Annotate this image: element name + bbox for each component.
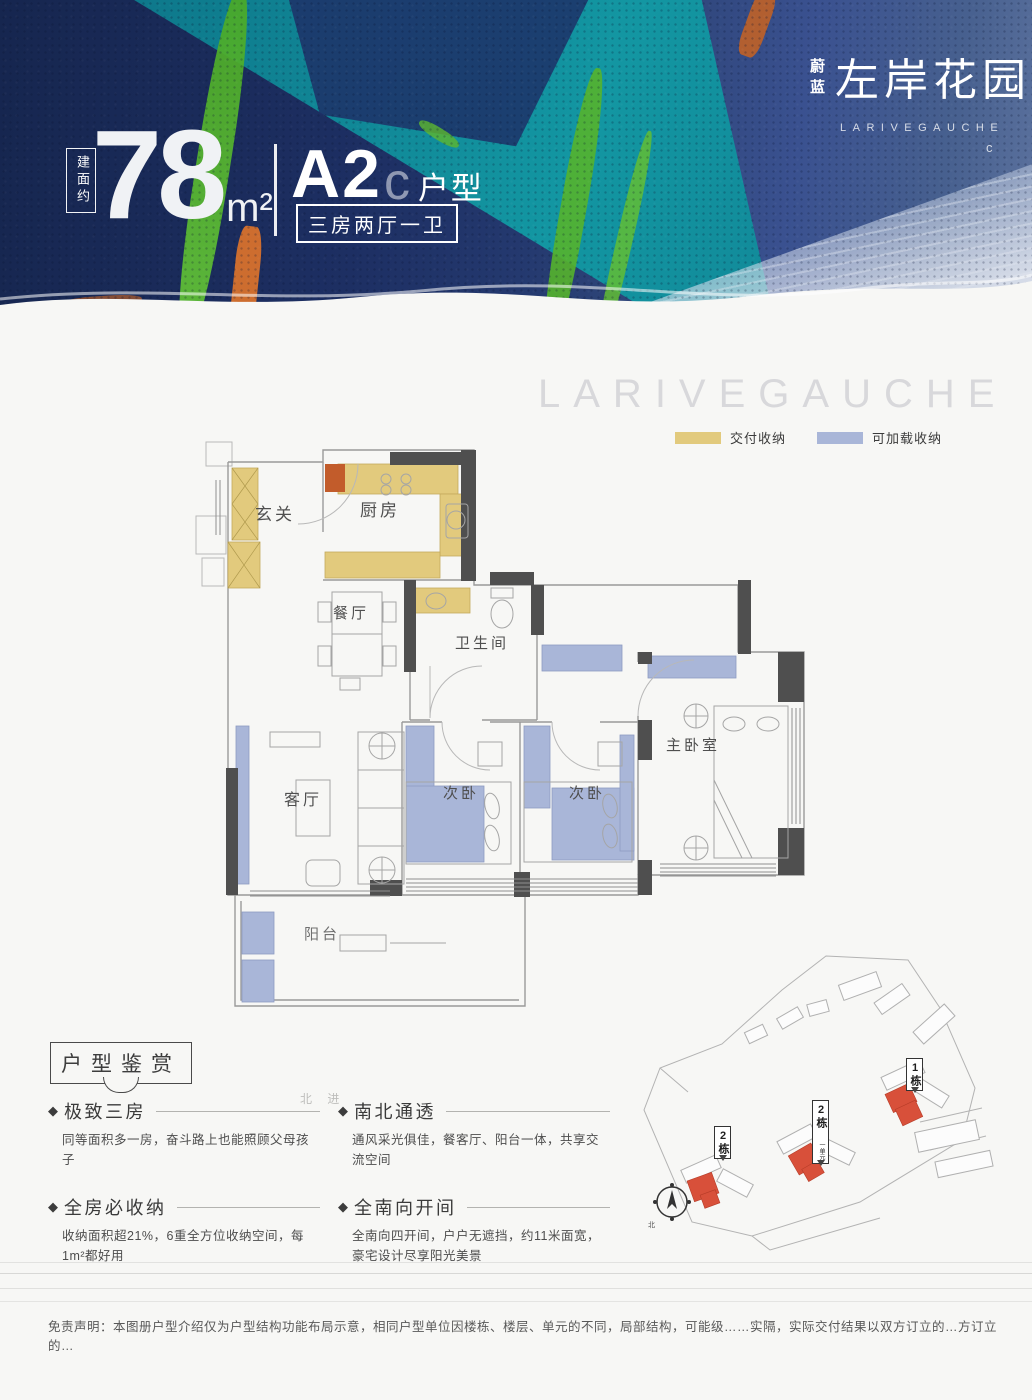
site-plan: 1栋 2栋 一单元 2栋 北 <box>630 950 1030 1262</box>
room-label-bedroom-2: 次卧 <box>443 782 479 803</box>
feature-title: 全南向开间 <box>354 1194 457 1220</box>
room-label-kitchen: 厨房 <box>360 496 400 521</box>
building-flag-3: 2栋 <box>714 1126 731 1159</box>
loadable-storage-label: 可加载收纳 <box>872 428 942 447</box>
header-divider <box>274 144 277 236</box>
feature-title: 南北通透 <box>354 1098 436 1124</box>
room-label-living: 客厅 <box>284 786 322 810</box>
feature-rule <box>177 1207 321 1208</box>
bullet-icon: ◆ <box>338 1199 348 1215</box>
feature-storage: ◆ 全房必收纳 收纳面积超21%，6重全方位收纳空间，每1m²都好用 <box>48 1194 320 1266</box>
floor-plan: 玄关 厨房 餐厅 卫生间 客厅 次卧 次卧 主卧室 阳台 <box>190 420 840 1020</box>
area-number: 78 <box>92 112 222 238</box>
brand-logo: 蔚蓝 左岸花园 <box>806 52 1031 109</box>
disclaimer-text: 免责声明：本图册户型介绍仅为户型结构功能布局示意，相同户型单位因楼栋、楼层、单元… <box>48 1316 998 1354</box>
building-flag-label: 2栋 <box>717 1130 729 1155</box>
bullet-icon: ◆ <box>48 1103 58 1119</box>
site-buildings <box>681 972 993 1198</box>
windows <box>216 480 800 896</box>
gross-area-value: 78 m² <box>92 112 273 238</box>
section-title-notch <box>103 1077 139 1093</box>
watermark-text: LARIVEGAUCHE <box>538 372 1007 417</box>
feature-rule <box>446 1111 610 1112</box>
building-flag-label: 2栋 <box>815 1104 827 1129</box>
feature-desc: 同等面积多一房，奋斗路上也能照顾父母孩子 <box>62 1130 320 1170</box>
feature-title: 极致三房 <box>64 1098 146 1124</box>
unit-type-label: 户型 <box>418 173 484 204</box>
delivered-storage <box>228 464 472 613</box>
feature-title: 全房必收纳 <box>64 1194 167 1220</box>
brand-latin-name: LARIVEGAUCHE <box>840 122 1004 134</box>
area-unit: m² <box>226 188 273 228</box>
room-label-balcony: 阳台 <box>304 923 340 944</box>
building-flag-sub: 一单元 <box>818 1142 824 1160</box>
footer-rule <box>0 1273 1032 1274</box>
room-label-master-bedroom: 主卧室 <box>666 734 720 755</box>
room-label-dining: 餐厅 <box>333 602 369 623</box>
feature-desc: 收纳面积超21%，6重全方位收纳空间，每1m²都好用 <box>62 1226 320 1266</box>
brand-name: 左岸花园 <box>835 52 1031 109</box>
footer-rule <box>0 1301 1032 1302</box>
feature-three-bedrooms: ◆ 极致三房 同等面积多一房，奋斗路上也能照顾父母孩子 <box>48 1098 320 1170</box>
unit-code-suffix: c <box>384 156 410 208</box>
bullet-icon: ◆ <box>48 1199 58 1215</box>
banner-orange-streak <box>735 0 779 60</box>
building-flag-label: 1栋 <box>909 1062 921 1087</box>
bullet-icon: ◆ <box>338 1103 348 1119</box>
room-label-entry: 玄关 <box>255 500 295 525</box>
feature-south-facing: ◆ 全南向开间 全南向四开间，户户无遮挡，约11米面宽，豪宅设计尽享阳光美景 <box>338 1194 610 1266</box>
banner-bottom-wave <box>0 269 1032 318</box>
layout-badge: 三房两厅一卫 <box>296 204 458 243</box>
site-plan-drawing <box>630 950 1030 1262</box>
unit-code: A2 <box>291 140 382 208</box>
building-flag-1: 1栋 <box>906 1058 923 1091</box>
fridge <box>325 464 345 492</box>
section-title-box: 户型鉴赏 <box>50 1042 192 1084</box>
footer-rule <box>0 1288 1032 1289</box>
exterior-ledges <box>196 442 232 586</box>
header-banner: 建面约 78 m² A2 c 户型 三房两厅一卫 蔚蓝 左岸花园 LARIVEG… <box>0 0 1032 318</box>
feature-list: ◆ 极致三房 同等面积多一房，奋斗路上也能照顾父母孩子 ◆ 南北通透 通风采光俱… <box>48 1098 610 1266</box>
brand-prefix: 蔚蓝 <box>806 58 827 100</box>
compass-icon <box>653 1183 691 1221</box>
feature-north-south: ◆ 南北通透 通风采光俱佳，餐客厅、阳台一体，共享交流空间 <box>338 1098 610 1170</box>
section-title: 户型鉴赏 <box>61 1048 181 1078</box>
feature-desc: 通风采光俱佳，餐客厅、阳台一体，共享交流空间 <box>352 1130 610 1170</box>
room-label-bedroom-3: 次卧 <box>569 782 605 803</box>
building-flag-2: 2栋 一单元 <box>812 1100 829 1164</box>
corner-mark: c <box>986 140 993 155</box>
feature-rule <box>156 1111 320 1112</box>
feature-rule <box>467 1207 611 1208</box>
room-label-bathroom: 卫生间 <box>455 632 509 653</box>
compass-north-label: 北 <box>648 1220 655 1230</box>
unit-type-title: A2 c 户型 <box>291 140 484 208</box>
loadable-storage <box>236 645 736 1002</box>
feature-desc: 全南向四开间，户户无遮挡，约11米面宽，豪宅设计尽享阳光美景 <box>352 1226 610 1266</box>
